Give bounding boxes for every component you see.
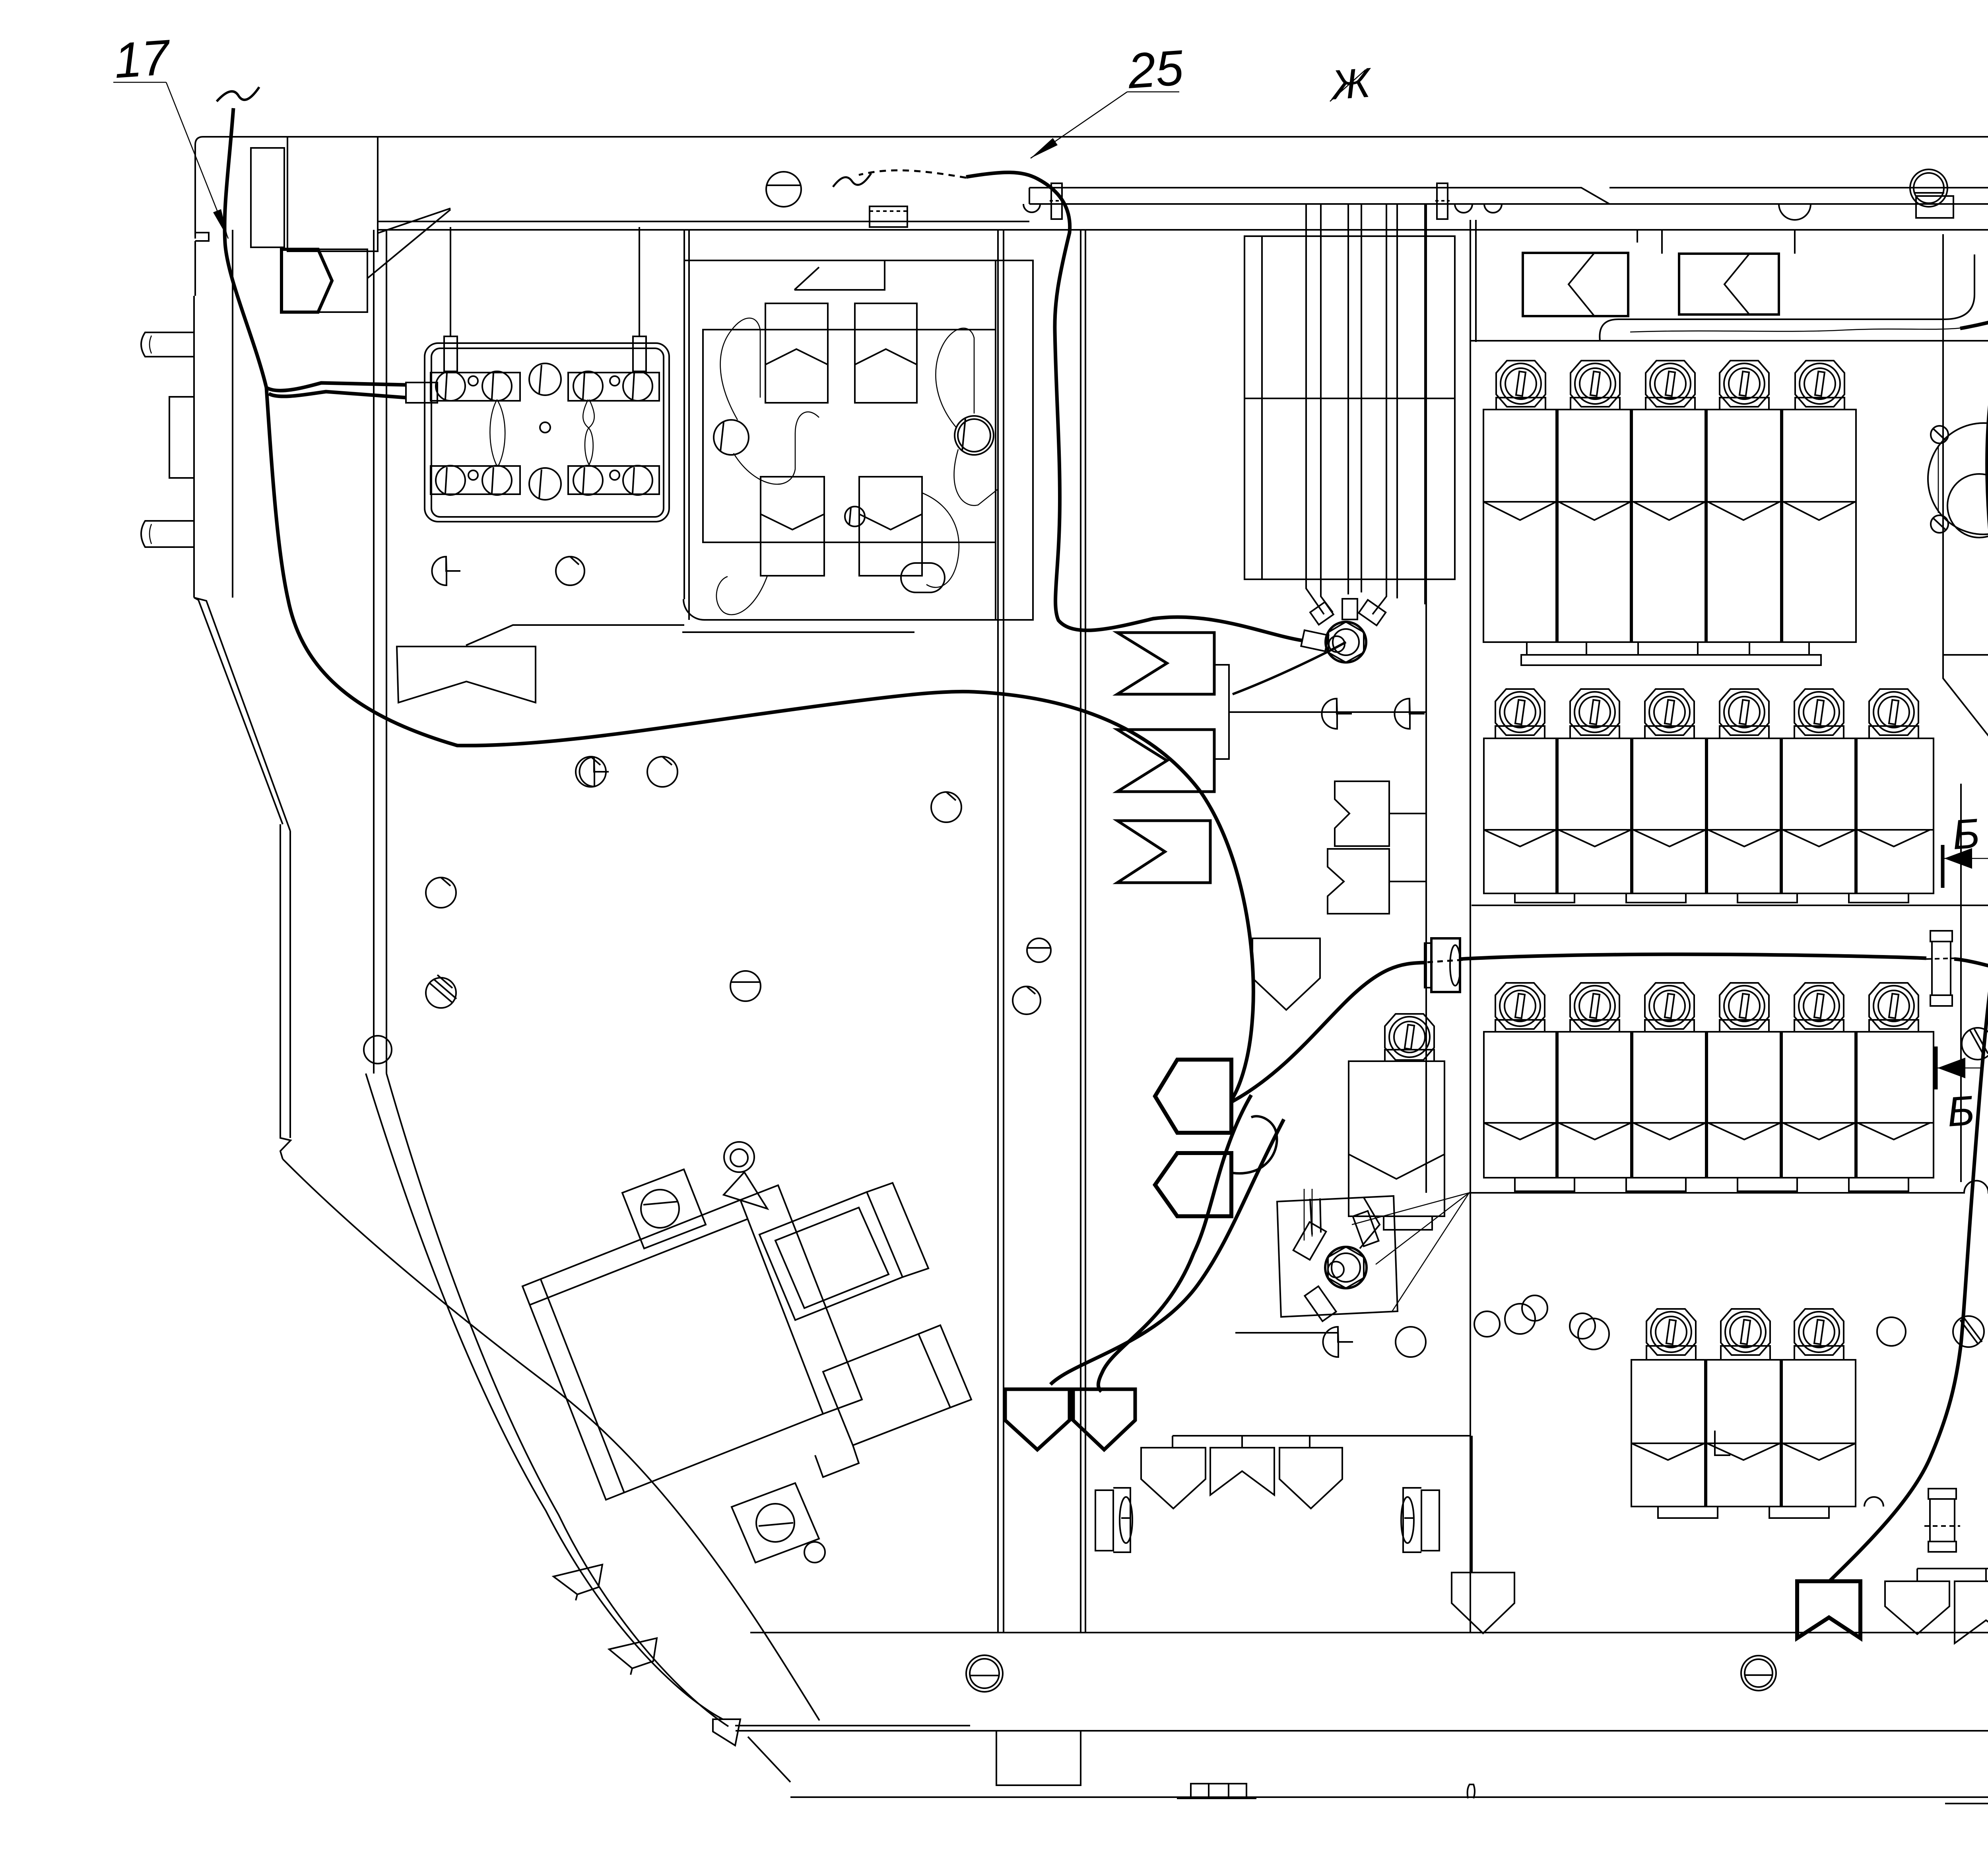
svg-text:Б: Б (1945, 1087, 1976, 1135)
svg-text:25: 25 (1126, 40, 1185, 99)
svg-text:17: 17 (112, 29, 173, 89)
svg-text:Ж: Ж (1328, 59, 1374, 109)
